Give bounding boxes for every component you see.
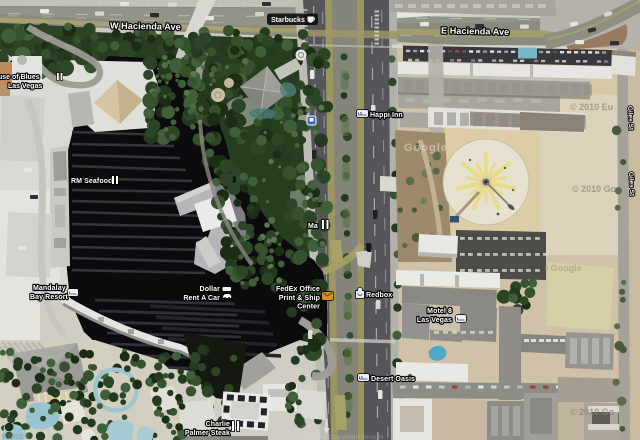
svg-text:©2010 S: ©2010 S [2,433,30,440]
svg-text:FedEx Office: FedEx Office [276,286,320,293]
svg-text:Motel 8: Motel 8 [427,308,452,315]
svg-text:© 2010 Go: © 2010 Go [572,184,617,194]
svg-text:© 2010 S Copyright Google: © 2010 S Copyright Google [300,433,384,440]
svg-text:Las Vegas: Las Vegas [417,317,452,324]
svg-text:Mandalay: Mandalay [33,285,66,292]
svg-text:Giles St: Giles St [626,106,634,131]
svg-text:Print & Ship: Print & Ship [279,295,320,302]
svg-text:Rent A Car: Rent A Car [183,295,220,302]
svg-text:Starbucks: Starbucks [271,17,305,24]
svg-text:Dollar: Dollar [200,286,221,293]
svg-text:Redbox: Redbox [366,292,392,299]
svg-text:use of Blues: use of Blues [0,74,40,81]
svg-text:W Hacienda Ave: W Hacienda Ave [110,21,181,32]
svg-text:Palmer Steak: Palmer Steak [185,430,230,437]
svg-text:RM Seafood: RM Seafood [71,178,112,185]
svg-text:Desert Oasis: Desert Oasis [371,376,415,383]
svg-text:Ma: Ma [308,223,318,230]
svg-text:Las Vegas: Las Vegas [8,83,42,90]
svg-text:E Hacienda Ave: E Hacienda Ave [441,26,509,37]
svg-text:© 2010 Go: © 2010 Go [570,407,615,417]
svg-text:Bay Resort: Bay Resort [30,294,69,301]
svg-text:© 2010 Eu: © 2010 Eu [570,102,613,112]
svg-text:Giles St: Giles St [627,172,635,197]
svg-text:Charlie: Charlie [206,421,230,428]
svg-text:Google: Google [404,142,448,154]
svg-text:• Google: • Google [545,263,582,273]
svg-text:Center: Center [297,304,320,311]
svg-text:Happi Inn: Happi Inn [370,112,403,119]
